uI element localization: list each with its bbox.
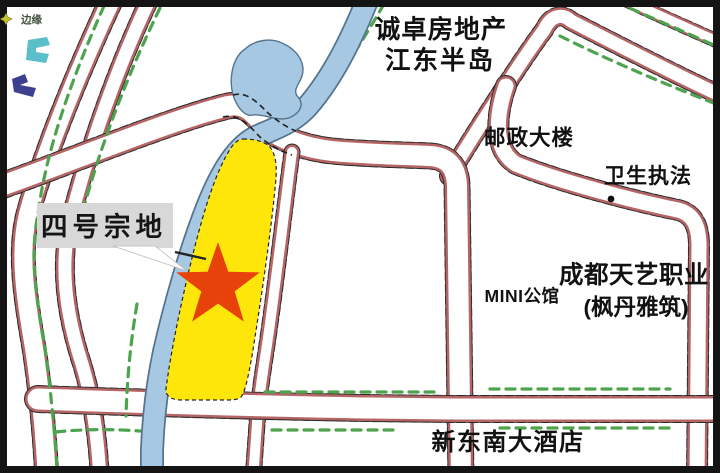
legend: 边缘 xyxy=(0,13,42,26)
label-hotel: 新东南大酒店 xyxy=(432,428,585,456)
legend-label: 边缘 xyxy=(20,13,42,26)
label-tianyi-line2: (枫丹雅筑) xyxy=(584,294,689,320)
label-post-building: 邮政大楼 xyxy=(484,125,574,150)
label-tianyi-line1: 成都天艺职业 xyxy=(559,261,709,289)
parcel-callout-label: 四号宗地 xyxy=(41,212,167,242)
road-bottom-horizontal xyxy=(38,399,720,409)
label-developer-line2: 江东半岛 xyxy=(385,46,495,75)
label-mini-mansion: MINI公馆 xyxy=(485,286,560,306)
label-health-enforcement: 卫生执法 xyxy=(604,164,692,188)
map-canvas: 四号宗地 诚卓房地产 江东半岛 邮政大楼 卫生执法 MINI公馆 成都天艺职业 … xyxy=(0,0,720,473)
health-enforcement-dot xyxy=(608,196,615,203)
pond xyxy=(231,40,303,119)
parcel-location-map: 四号宗地 诚卓房地产 江东半岛 邮政大楼 卫生执法 MINI公馆 成都天艺职业 … xyxy=(0,0,720,473)
label-developer-line1: 诚卓房地产 xyxy=(375,15,508,44)
